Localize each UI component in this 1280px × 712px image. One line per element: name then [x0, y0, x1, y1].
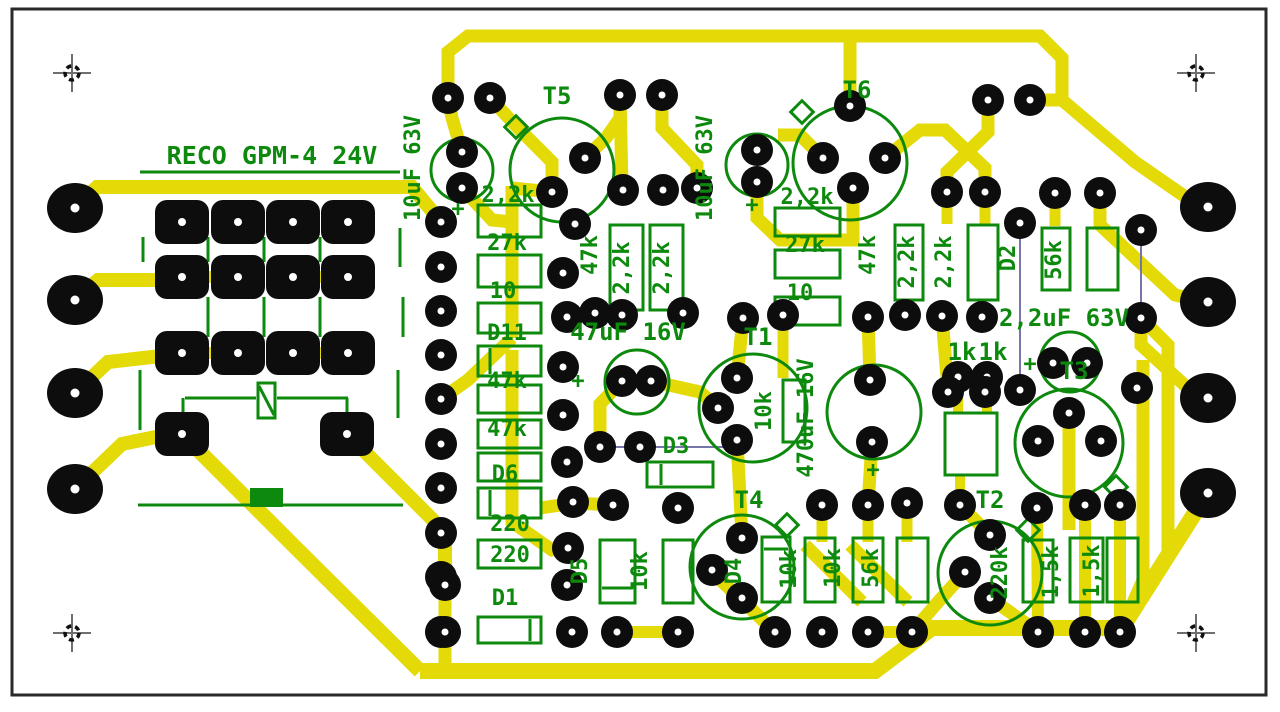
pad-hole — [438, 264, 445, 271]
pad-hole — [178, 430, 186, 438]
pad-hole — [234, 273, 242, 281]
pad-hole — [344, 218, 352, 226]
silk-label: 220 — [490, 512, 530, 537]
pad-hole — [780, 312, 787, 319]
pad-hole — [438, 530, 445, 537]
pad-hole — [1117, 629, 1124, 636]
pad-hole — [560, 270, 567, 277]
pad-hole — [865, 629, 872, 636]
pad-hole — [739, 595, 746, 602]
pad-hole — [565, 545, 572, 552]
pad-hole — [945, 389, 952, 396]
pad-hole — [754, 147, 761, 154]
pad-hole — [709, 567, 716, 574]
pad-hole — [617, 92, 624, 99]
silk-label: 1k — [948, 338, 977, 366]
pad-hole — [560, 412, 567, 419]
pad-hole — [1066, 410, 1073, 417]
pad-hole — [962, 569, 969, 576]
silk-label: 2,2k — [482, 183, 535, 208]
pad-hole — [734, 437, 741, 444]
pad-hole — [71, 389, 80, 398]
pad-hole — [234, 218, 242, 226]
pad-hole — [438, 308, 445, 315]
pad-hole — [909, 629, 916, 636]
pad-hole — [445, 95, 452, 102]
pad-hole — [939, 313, 946, 320]
pad-hole — [740, 315, 747, 322]
silk-label: 47uF 16V — [570, 318, 686, 346]
pad-hole — [344, 349, 352, 357]
pad-hole — [754, 179, 761, 186]
pad-hole — [902, 312, 909, 319]
pad-hole — [820, 155, 827, 162]
pad-hole — [985, 97, 992, 104]
pad-hole — [982, 389, 989, 396]
pcb-board-canvas: RECO GPM-4 24V 10uF 63V10uF 63VT5T62,2k2… — [0, 0, 1280, 712]
pad-hole — [438, 352, 445, 359]
silk-label: 10uF 63V — [401, 115, 426, 221]
silk-label: 10 — [787, 281, 814, 306]
silk-label: T4 — [735, 486, 764, 514]
pad-hole — [1082, 502, 1089, 509]
pad-hole — [572, 221, 579, 228]
pad-hole — [71, 485, 80, 494]
silk-label: T6 — [843, 76, 872, 104]
silk-label: 470uF 16V — [794, 358, 819, 477]
silk-label: 47k — [487, 369, 527, 394]
silk-label: T3 — [1060, 357, 1089, 385]
pad-hole — [71, 204, 80, 213]
silk-label: 47k — [487, 417, 527, 442]
pad-hole — [739, 535, 746, 542]
silk-label: D2 — [996, 245, 1021, 272]
pad-hole — [1035, 438, 1042, 445]
silk-label: T2 — [976, 486, 1005, 514]
pad-hole — [1117, 502, 1124, 509]
pad-hole — [680, 310, 687, 317]
pad-hole — [178, 218, 186, 226]
pad-hole — [957, 502, 964, 509]
silk-label: D6 — [492, 462, 519, 487]
pad-hole — [610, 502, 617, 509]
pad-hole — [675, 629, 682, 636]
silk-label: 2,2k — [895, 236, 920, 289]
silk-label: 2,2uF 63V — [999, 304, 1129, 332]
pad-hole — [1035, 629, 1042, 636]
silk-label: 220k — [988, 547, 1013, 600]
pcb-layout-image: RECO GPM-4 24V 10uF 63V10uF 63VT5T62,2k2… — [0, 0, 1280, 712]
pad-hole — [569, 629, 576, 636]
pad-hole — [1204, 203, 1213, 212]
silk-label: + — [571, 369, 584, 394]
silk-label: 56k — [1042, 240, 1067, 280]
silk-label: + — [745, 193, 758, 218]
pad-hole — [597, 444, 604, 451]
silk-label: 10k — [752, 391, 777, 431]
pad-hole — [944, 189, 951, 196]
pad-hole — [1138, 315, 1145, 322]
pad-hole — [904, 500, 911, 507]
silk-label: D3 — [663, 434, 690, 459]
pad-hole — [675, 505, 682, 512]
silk-label: + — [1023, 352, 1036, 377]
pad-hole — [660, 187, 667, 194]
pad-hole — [582, 155, 589, 162]
pad-hole — [570, 499, 577, 506]
silk-label: 47k — [856, 235, 881, 275]
silk-label: D4 — [722, 558, 747, 585]
pad-hole — [850, 185, 857, 192]
silk-label: 2,2k — [932, 236, 957, 289]
silk-label: 10k — [777, 549, 802, 589]
pad-hole — [289, 349, 297, 357]
pad-hole — [614, 629, 621, 636]
pad-hole — [865, 502, 872, 509]
pad-hole — [819, 629, 826, 636]
silk-label: 1,5k — [1080, 545, 1105, 598]
pad-hole — [1082, 629, 1089, 636]
pad-hole — [772, 629, 779, 636]
silk-label: 1,5k — [1039, 546, 1064, 599]
pad-hole — [438, 219, 445, 226]
silk-label: 56k — [859, 548, 884, 588]
pad-hole — [71, 296, 80, 305]
silk-label: T1 — [744, 323, 773, 351]
pad-hole — [178, 273, 186, 281]
pad-hole — [1098, 438, 1105, 445]
pad-hole — [1204, 394, 1213, 403]
pad-hole — [1204, 298, 1213, 307]
pad-hole — [865, 314, 872, 321]
pad-hole — [620, 187, 627, 194]
board-title: RECO GPM-4 24V — [167, 141, 378, 170]
pad-hole — [1017, 387, 1024, 394]
pad-hole — [1050, 360, 1057, 367]
pad-hole — [619, 378, 626, 385]
pad-hole — [560, 364, 567, 371]
pad-hole — [1204, 489, 1213, 498]
silk-label: 1k — [979, 338, 1008, 366]
pad-hole — [979, 314, 986, 321]
silk-label: 2,2k — [610, 242, 635, 295]
pad-hole — [442, 629, 449, 636]
pad-hole — [1138, 227, 1145, 234]
pad-hole — [659, 92, 666, 99]
silk-label: 10k — [821, 548, 846, 588]
silk-label: D11 — [487, 321, 527, 346]
silk-label: 2,2k — [650, 242, 675, 295]
pad-hole — [178, 349, 186, 357]
silk-label: 220 — [490, 543, 530, 568]
pad-hole — [1017, 220, 1024, 227]
silkscreen-filled-rect — [250, 488, 283, 507]
pad-hole — [734, 375, 741, 382]
pad-hole — [564, 459, 571, 466]
pad-hole — [442, 582, 449, 589]
pad-hole — [289, 218, 297, 226]
pad-hole — [1034, 505, 1041, 512]
pad-hole — [438, 396, 445, 403]
silk-label: 27k — [487, 231, 527, 256]
silk-label: + — [866, 458, 879, 483]
silk-label: 2,2k — [781, 185, 834, 210]
pad-hole — [459, 185, 466, 192]
pad-hole — [648, 378, 655, 385]
silk-label: T5 — [543, 82, 572, 110]
pad-hole — [592, 310, 599, 317]
pad-hole — [234, 349, 242, 357]
pad-hole — [487, 95, 494, 102]
pad-hole — [459, 149, 466, 156]
pad-hole — [1097, 190, 1104, 197]
silk-label: 47k — [578, 235, 603, 275]
pad-hole — [637, 444, 644, 451]
pad-hole — [289, 273, 297, 281]
silk-label: D1 — [492, 586, 519, 611]
pad-hole — [819, 502, 826, 509]
pad-hole — [438, 441, 445, 448]
silk-label: 10 — [490, 279, 517, 304]
silk-label: D5 — [568, 558, 593, 585]
pad-hole — [1027, 97, 1034, 104]
silk-label: 10k — [628, 551, 653, 591]
pad-hole — [869, 439, 876, 446]
pad-hole — [343, 430, 351, 438]
pad-hole — [438, 485, 445, 492]
silk-label: 27k — [785, 233, 825, 258]
pad-hole — [1052, 190, 1059, 197]
pad-hole — [1134, 385, 1141, 392]
pad-hole — [882, 155, 889, 162]
pad-hole — [987, 532, 994, 539]
pad-hole — [982, 189, 989, 196]
pad-hole — [715, 405, 722, 412]
pad-hole — [549, 189, 556, 196]
pad-hole — [344, 273, 352, 281]
pad-hole — [867, 377, 874, 384]
silk-label: 10uF 63V — [693, 115, 718, 221]
silk-label: + — [451, 197, 464, 222]
